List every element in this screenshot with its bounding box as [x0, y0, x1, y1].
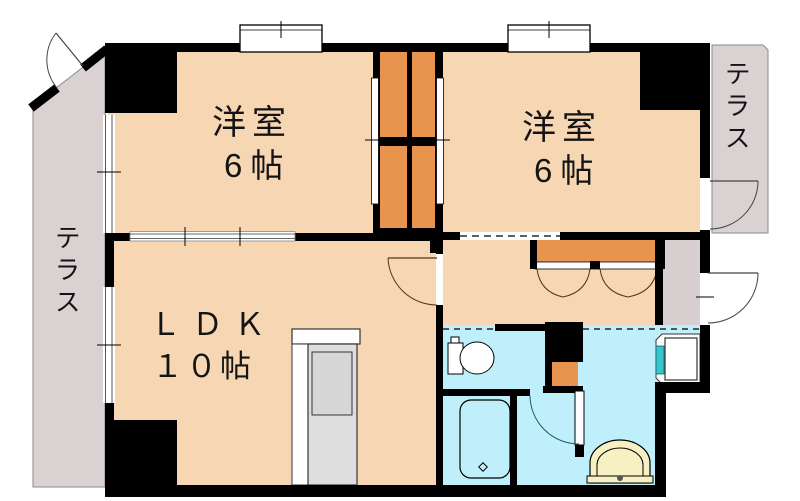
wall: [436, 305, 443, 325]
wall: [436, 395, 443, 487]
center-closets: [365, 43, 450, 233]
kitchen-partition: [292, 344, 308, 485]
closet-sliding-door-left: [372, 78, 379, 204]
bedroom-right-opening: [460, 232, 560, 240]
wall-left-mid: [105, 233, 114, 287]
wall: [295, 233, 443, 241]
storage-box: [552, 362, 578, 386]
wall-bottom: [105, 485, 666, 497]
wall: [590, 261, 600, 269]
terrace-left-label: テラス: [52, 224, 80, 320]
entrance-floor: [663, 240, 703, 325]
faucet: [656, 346, 664, 374]
toilet-button: [451, 337, 459, 343]
wall-bath-divider: [510, 393, 517, 485]
bedroom-right-label: 洋室: [522, 110, 602, 147]
ldk-label: ＬＤＫ: [150, 308, 276, 341]
kitchen-hanging-cabinet: [292, 329, 360, 344]
closet-sliding-door-right: [437, 78, 444, 204]
wall-washroom-right: [655, 385, 666, 497]
closet-divider: [373, 137, 443, 146]
washing-machine-pan: [656, 334, 700, 384]
ldk-size: １０帖: [152, 350, 254, 383]
bathtub: [460, 400, 510, 478]
pillar-top-right: [640, 43, 710, 110]
bedroom-left-label: 洋室: [212, 105, 292, 142]
floor-plan: 洋室 6帖 洋室 6帖 ＬＤＫ １０帖 テラス テラス: [0, 0, 800, 501]
wall: [114, 233, 130, 241]
terrace-door-arc: [47, 33, 57, 88]
terrace-door-leaf: [56, 33, 83, 66]
outside-mask: [665, 390, 800, 501]
toilet-bowl: [460, 342, 494, 374]
terrace-right-label: テラス: [722, 60, 750, 156]
wall: [560, 232, 710, 240]
wall: [436, 240, 443, 254]
wall: [530, 240, 537, 269]
floor-plan-drawing: [0, 0, 800, 501]
kitchen-sink: [312, 352, 352, 415]
bedroom-right-size: 6帖: [534, 153, 601, 189]
kitchen-counter: [292, 329, 360, 485]
window-left-bedroom: [103, 115, 115, 233]
wall: [545, 322, 583, 362]
bedroom-left-size: 6帖: [224, 148, 291, 184]
entrance-door: [696, 273, 758, 325]
wall: [575, 445, 584, 457]
wall-entrance-left: [655, 240, 663, 325]
wall: [436, 325, 443, 395]
washer-box: [665, 338, 697, 380]
wall-top: [105, 43, 710, 52]
hall-closet-body: [537, 240, 657, 262]
wall: [495, 324, 545, 331]
wall: [443, 232, 460, 240]
pillar-bottom-left: [105, 420, 177, 488]
basin-drain: [617, 475, 623, 481]
wall: [105, 403, 114, 423]
wall-right: [700, 325, 710, 390]
pillar-top-left: [105, 43, 177, 113]
wall-right: [700, 52, 710, 178]
